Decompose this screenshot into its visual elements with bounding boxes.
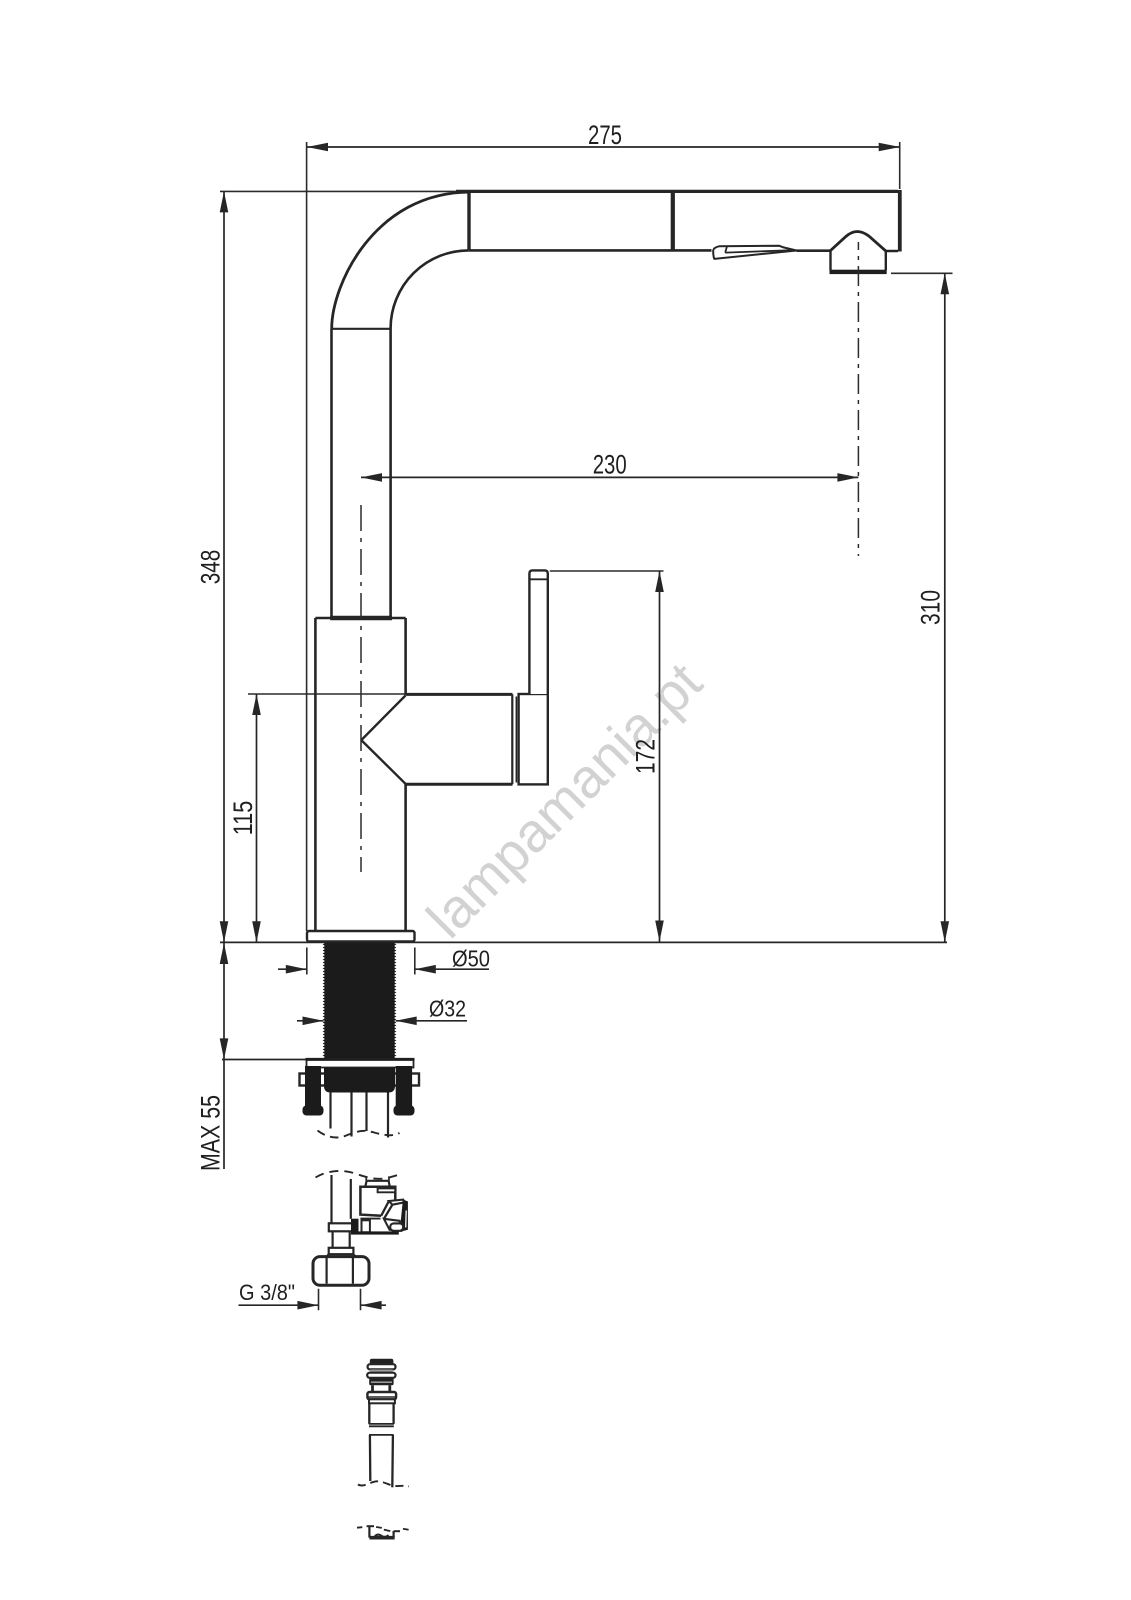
svg-text:310: 310	[916, 590, 946, 625]
svg-text:Ø50: Ø50	[452, 946, 490, 972]
svg-text:230: 230	[593, 449, 627, 479]
svg-text:348: 348	[196, 550, 226, 585]
svg-text:Ø32: Ø32	[429, 996, 466, 1022]
svg-text:115: 115	[228, 801, 258, 836]
svg-text:MAX 55: MAX 55	[196, 1095, 226, 1171]
svg-text:275: 275	[588, 120, 622, 150]
svg-text:172: 172	[631, 739, 661, 774]
svg-text:G 3/8": G 3/8"	[239, 1280, 295, 1305]
